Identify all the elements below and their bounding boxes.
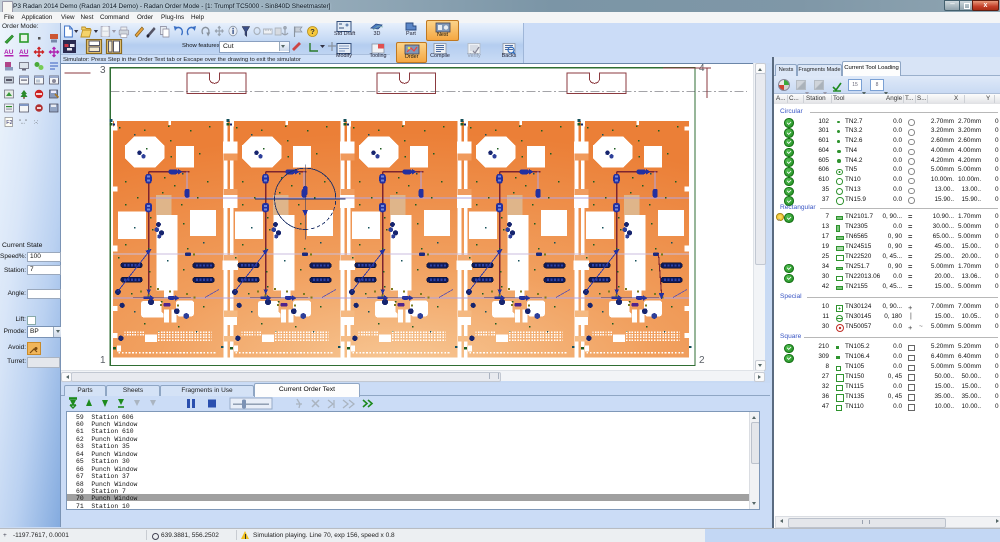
svg-text:?: ?	[310, 27, 315, 36]
svg-text:2: 2	[699, 355, 705, 366]
svg-text:"...": "..."	[19, 120, 27, 126]
svg-text::-:: :-:	[34, 120, 38, 126]
svg-text:1: 1	[100, 355, 106, 366]
svg-text:3: 3	[100, 65, 106, 76]
svg-text:AU: AU	[19, 49, 29, 56]
svg-text:AU: AU	[4, 49, 14, 56]
svg-text:4: 4	[699, 64, 705, 74]
svg-text:F2: F2	[6, 120, 12, 126]
